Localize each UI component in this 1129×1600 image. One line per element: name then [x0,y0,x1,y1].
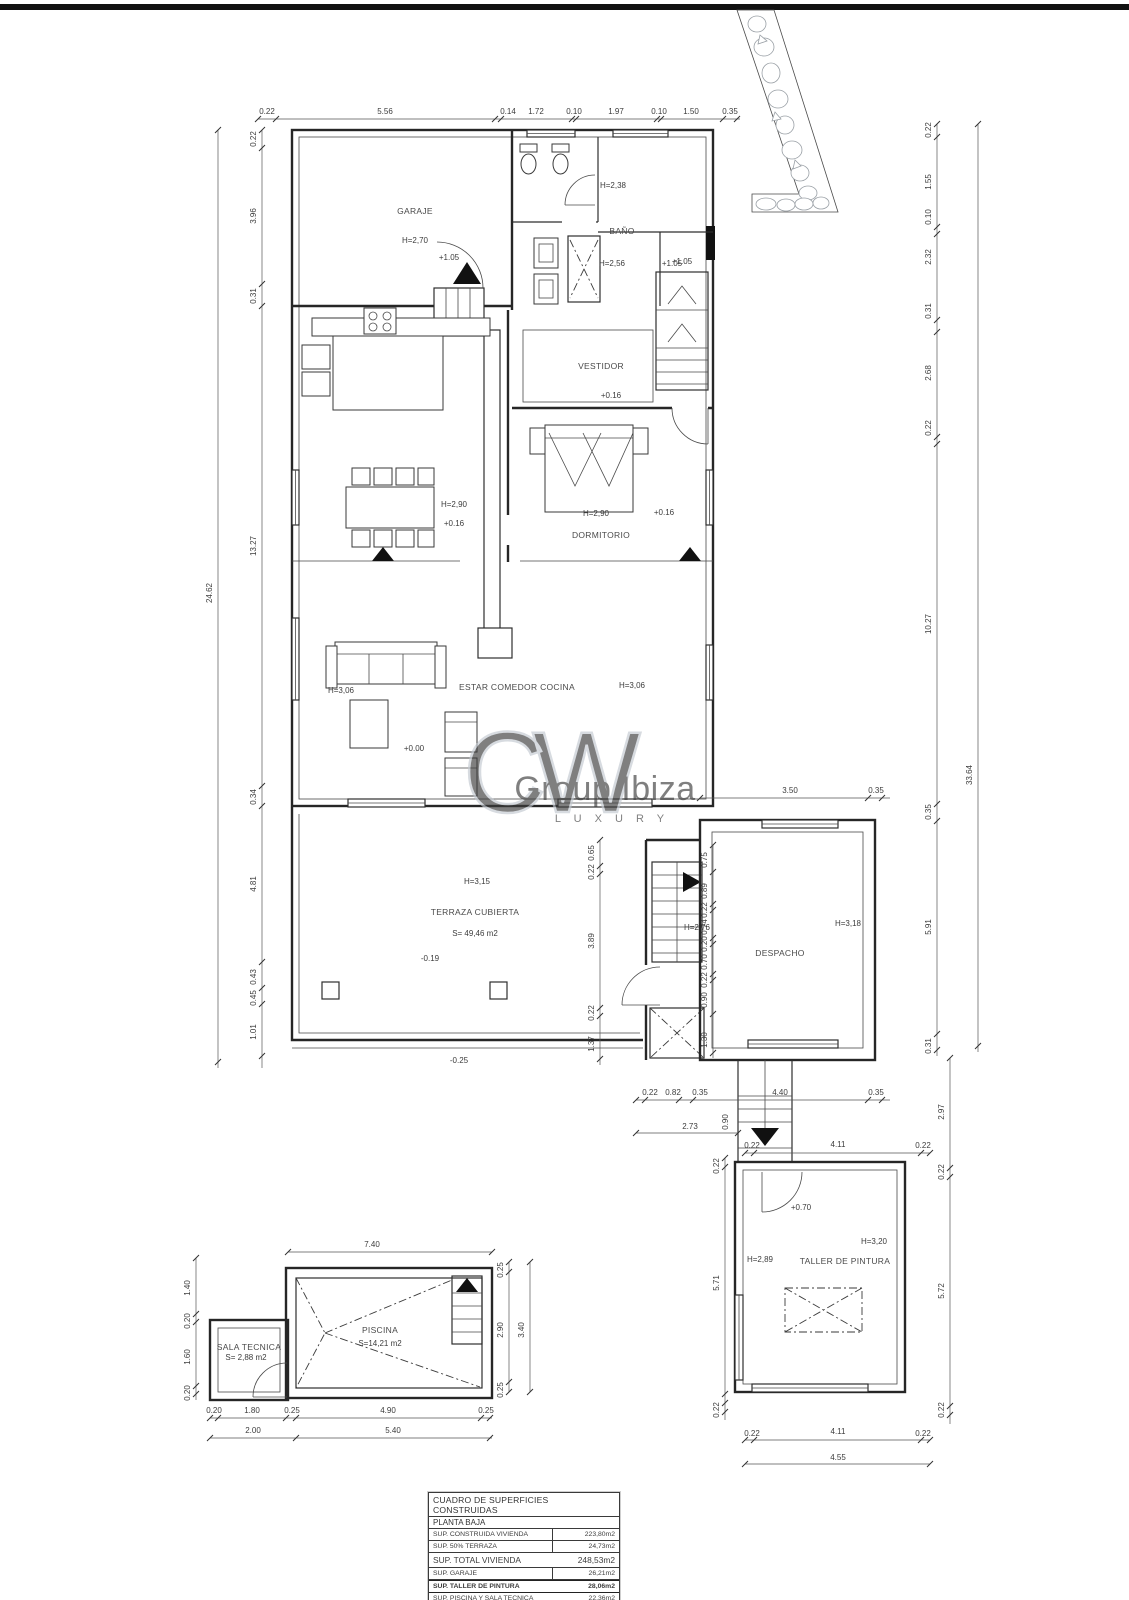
dim-label: 1.55 [924,174,933,190]
column [490,982,507,999]
dim-label: 1.97 [608,107,624,116]
dimension-total-right: 33.64 [965,121,981,1052]
dim-label: 0.35 [722,107,738,116]
dim-label: 4.11 [831,1427,847,1436]
dim-label: 3.89 [587,933,596,949]
bedroom: H=2,90 +0.16 DORMITORIO [530,425,675,540]
row-value: 28,06m2 [553,1581,619,1592]
main-house: GARAJE H=2,70 +1.05 H=2,38 [292,130,715,807]
dim-label: 0.31 [924,1038,933,1054]
shaft [650,1008,704,1058]
level-label: +0.16 [444,519,465,528]
page-border [0,4,1129,10]
table-floor-label: PLANTA BAJA [429,1517,619,1529]
level-label: +0.70 [791,1203,812,1212]
dim-label: 0.20 [183,1313,192,1329]
table-row: SUP. PISCINA Y SALA TECNICA 22,36m2 [429,1593,619,1600]
toilet-icon [520,144,537,174]
coffee-table [350,700,388,748]
dim-label: 4.40 [772,1088,788,1097]
dim-label: 1.80 [244,1406,260,1415]
dim-label: 3.40 [517,1322,526,1338]
dim-label: 0.89 [700,883,709,899]
room-label: SALA TECNICA [217,1342,281,1352]
dimension-chain-left: 0.22 3.96 0.31 13.27 0.34 4.81 0.43 0.45… [249,127,265,1068]
dimension-chain-right: 0.22 1.55 0.10 2.32 0.31 2.68 0.22 10.27… [924,121,940,1056]
dim-label: 0.22 [915,1141,931,1150]
dim-label: 10.27 [924,613,933,634]
table-row: SUP. TALLER DE PINTURA 28,06m2 [429,1580,619,1593]
pool-arrow-icon [456,1278,478,1292]
dim-label: 4.11 [831,1140,847,1149]
stone-wall [737,10,838,212]
level-label: +0.16 [654,508,675,517]
level-label: +1.05 [439,253,460,262]
row-label: SUP. TALLER DE PINTURA [429,1581,553,1592]
level-label: +0.16 [601,391,622,400]
room-label: TALLER DE PINTURA [800,1256,890,1266]
height-label: H=3,06 [328,686,355,695]
table-row: SUP. CONSTRUIDA VIVIENDA 223,80m2 [429,1529,619,1541]
dim-label: 0.22 [712,1402,721,1418]
dim-label: 0.10 [651,107,667,116]
row-label: SUP. TOTAL VIVIENDA [429,1553,553,1567]
watermark-tagline: L U X U R Y [555,813,669,825]
dim-label: 0.22 [915,1429,931,1438]
dim-label: 2.97 [937,1104,946,1120]
level-label: +0.00 [404,744,425,753]
level-label: -0.19 [421,954,440,963]
pool-area: PISCINA S=14,21 m2 SALA TECNICA S= 2,88 … [183,1240,533,1441]
dimension-chain-workshop: 0.22 4.11 0.22 0.22 4.11 0.22 4.55 0.22 … [712,1140,933,1467]
dim-label: 4.55 [830,1453,846,1462]
dim-label: 0.25 [478,1406,494,1415]
dim-label: 0.65 [587,845,596,861]
up-arrow-icon [668,286,696,304]
covered-terrace: H=3,15 TERRAZA CUBIERTA S= 49,46 m2 -0.1… [292,807,643,1065]
chair [396,468,414,485]
height-label: H=2,70 [402,236,429,245]
dim-label: 1.60 [183,1349,192,1365]
floor-plan-page: 0.22 5.56 0.14 1.72 0.10 1.97 0.10 1.50 … [0,0,1129,1600]
table-row: SUP. 50% TERRAZA 24,73m2 [429,1541,619,1553]
work-table [785,1288,862,1332]
dim-label: 0.22 [700,902,709,918]
column [322,982,339,999]
dim-label: 0.10 [566,107,582,116]
row-value: 248,53m2 [553,1553,619,1567]
dim-label: 2.00 [245,1426,261,1435]
row-label: SUP. CONSTRUIDA VIVIENDA [429,1529,552,1540]
height-label: H=3,15 [464,877,491,886]
dim-label: 24.62 [205,582,214,603]
area-label: S= 49,46 m2 [452,929,498,938]
nightstand [530,428,545,454]
row-value: 223,80m2 [552,1529,619,1540]
dim-label: 0.25 [496,1382,505,1398]
dining-table [346,487,434,528]
dim-label: 13.27 [249,535,258,556]
dim-label: 0.22 [642,1088,658,1097]
window [735,1295,868,1392]
dim-label: 0.20 [206,1406,222,1415]
dim-label: 2.68 [924,365,933,381]
pool-steps [452,1276,482,1344]
watermark-brand: Group Ibiza [514,770,695,808]
door-arc [672,408,708,444]
chair [352,468,370,485]
table-row: SUP. TOTAL VIVIENDA 248,53m2 [429,1553,619,1568]
area-label: S= 2,88 m2 [225,1353,267,1362]
toilet-icon [552,144,569,174]
nightstand [633,428,648,454]
dim-label: 0.82 [665,1088,681,1097]
height-label: H=3,18 [835,919,862,928]
dim-label: 1.01 [249,1024,258,1040]
room-label: GARAJE [397,206,433,216]
dim-label: 0.22 [744,1141,760,1150]
dim-label: 0.22 [259,107,275,116]
dimension-chain-terrace: 0.65 0.22 3.89 0.22 1.37 [587,837,603,1065]
dim-label: 0.45 [249,990,258,1006]
dim-label: 0.35 [868,786,884,795]
dim-label: 0.74 [700,919,709,935]
row-label: SUP. 50% TERRAZA [429,1541,552,1552]
dim-label: 0.22 [249,131,258,147]
row-value: 22,36m2 [553,1593,619,1600]
dining-area: H=2,90 +0.16 [346,468,468,547]
technical-room: SALA TECNICA S= 2,88 m2 [210,1320,288,1400]
dim-label: 0.34 [249,789,258,805]
stove-icon [364,308,396,334]
room-label: VESTIDOR [578,361,624,371]
dim-label: 0.14 [500,107,516,116]
dim-label: 0.90 [700,992,709,1008]
dim-label: 0.22 [924,122,933,138]
floor-plan-drawing: 0.22 5.56 0.14 1.72 0.10 1.97 0.10 1.50 … [0,0,1129,1600]
window [748,820,838,1048]
room-label: TERRAZA CUBIERTA [431,907,520,917]
height-label: H=2,89 [747,1255,774,1264]
dim-label: 0.22 [744,1429,760,1438]
sofa [335,642,437,684]
dim-label: 1.40 [183,1280,192,1296]
dim-label: 0.25 [496,1262,505,1278]
dim-label: 0.35 [868,1088,884,1097]
height-label: H=2,38 [600,181,627,190]
dim-label: 0.10 [924,209,933,225]
up-arrow-icon [668,324,696,342]
dim-label: 0.22 [700,972,709,988]
chair [374,468,392,485]
height-label: H=3,20 [861,1237,888,1246]
stairs [652,862,702,962]
dim-label: 0.25 [284,1406,300,1415]
chair [352,530,370,547]
dim-label: 0.22 [924,420,933,436]
middle-stairs: 0.22 0.82 0.35 4.40 0.35 2.73 0.90 [633,1060,890,1162]
dim-label: 0.22 [712,1158,721,1174]
dim-label: 2.73 [682,1122,698,1131]
dim-label: 2.90 [496,1322,505,1338]
dim-label: 3.50 [782,786,798,795]
dim-label: 0.20 [183,1385,192,1401]
dimension-chain-office-top: 3.50 0.35 [697,786,890,801]
dim-label: 0.22 [937,1164,946,1180]
watermark: CW Group Ibiza L U X U R Y [463,709,695,837]
dim-label: 0.35 [692,1088,708,1097]
chair [396,530,414,547]
table-row: SUP. GARAJE 26,21m2 [429,1568,619,1580]
height-label: H=2,56 [599,259,626,268]
dim-label: 0.43 [249,969,258,985]
stair-hall: H=2,76 0.75 0.89 0.22 0.74 0.20 0.70 0.2… [622,840,716,1060]
dim-label: 0.22 [587,864,596,880]
section-arrow-icon [372,547,394,561]
row-label: SUP. GARAJE [429,1568,552,1579]
dim-label: 5.40 [385,1426,401,1435]
dimension-chain-right-lower: 2.97 0.22 5.72 0.22 [937,1055,953,1424]
dim-label: 5.72 [937,1283,946,1299]
kitchen [302,308,490,410]
dim-label: 1.30 [700,1032,709,1048]
area-label: S=14,21 m2 [358,1339,402,1348]
row-value: 24,73m2 [552,1541,619,1552]
dim-label: 0.70 [700,954,709,970]
dimension-total-left: 24.62 [205,127,221,1068]
row-label: SUP. PISCINA Y SALA TECNICA [429,1593,553,1600]
dim-label: 5.56 [377,107,393,116]
dim-label: 0.31 [924,303,933,319]
wall-post [706,226,715,260]
dim-label: 1.72 [528,107,544,116]
dim-label: 33.64 [965,764,974,785]
row-value: 26,21m2 [552,1568,619,1579]
dim-label: 0.90 [721,1114,730,1130]
dimension-chain-top: 0.22 5.56 0.14 1.72 0.10 1.97 0.10 1.50 … [255,107,740,122]
chair [418,468,434,485]
dim-label: 1.37 [587,1036,596,1052]
dim-label: 5.91 [924,919,933,935]
level-label: +1.05 [672,257,693,266]
level-label: -0.25 [450,1056,469,1065]
height-label: H=2,90 [441,500,468,509]
chair [418,530,434,547]
room-label: BAÑO [609,226,634,236]
table-title: CUADRO DE SUPERFICIES CONSTRUIDAS [429,1493,619,1517]
dim-label: 2.32 [924,249,933,265]
dim-label: 4.90 [380,1406,396,1415]
dim-label: 0.35 [924,804,933,820]
room-label: DORMITORIO [572,530,630,540]
dim-label: 3.96 [249,208,258,224]
chair [374,530,392,547]
dim-label: 5.71 [712,1275,721,1291]
dim-label: 0.75 [700,852,709,868]
areas-table: CUADRO DE SUPERFICIES CONSTRUIDAS PLANTA… [428,1492,620,1600]
dim-label: 0.22 [937,1402,946,1418]
upper-staircase: +1.05 [656,257,708,390]
dim-label: 0.31 [249,288,258,304]
door-arc [622,967,660,1005]
wc-room: H=2,38 [520,144,627,205]
section-arrow-icon [679,547,701,561]
room-label: DESPACHO [755,948,805,958]
door-arc [565,175,595,205]
dim-label: 0.22 [587,1005,596,1021]
office-room: DESPACHO H=3,18 3.50 0.35 [697,786,890,1060]
room-label: ESTAR COMEDOR COCINA [459,682,575,692]
dim-label: 0.20 [700,936,709,952]
dim-label: 7.40 [364,1240,380,1249]
room-label: PISCINA [362,1325,398,1335]
height-label: H=2,90 [583,509,610,518]
garage-room: GARAJE H=2,70 +1.05 [397,206,484,336]
dim-label: 1.50 [683,107,699,116]
dim-label: 4.81 [249,876,258,892]
workshop-room: +0.70 H=3,20 H=2,89 TALLER DE PINTURA 0.… [712,1140,933,1467]
height-label: H=3,06 [619,681,646,690]
